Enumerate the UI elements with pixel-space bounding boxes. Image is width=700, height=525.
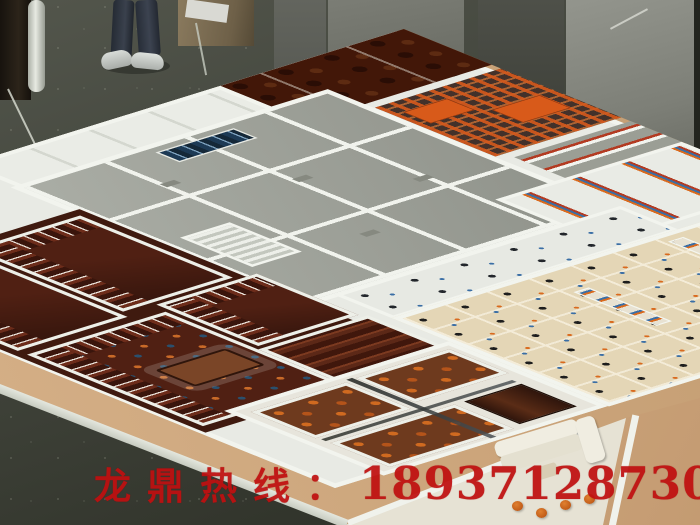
office-bookcase [668,237,700,279]
watermark-hotline: 龙鼎热线：18937128730 [94,461,700,506]
watermark-label: 龙鼎热线： [94,464,359,508]
jeans-leg [135,0,161,57]
workshop-scene-photo: 龙鼎热线：18937128730 [0,0,700,525]
roof-door [160,180,182,187]
reading-table [154,348,265,386]
office-bookcase [573,287,672,326]
orange-rack [492,95,571,123]
stacked-dark-object [0,0,31,100]
roof-door [359,229,381,236]
roof-door [412,174,434,181]
watermark-phone: 18937128730 [359,457,700,510]
white-floor-pole [28,0,45,92]
person-legs [100,0,172,80]
frame-edge-shadow [694,0,700,162]
roof-door [292,175,314,182]
orange-rack [403,99,475,124]
